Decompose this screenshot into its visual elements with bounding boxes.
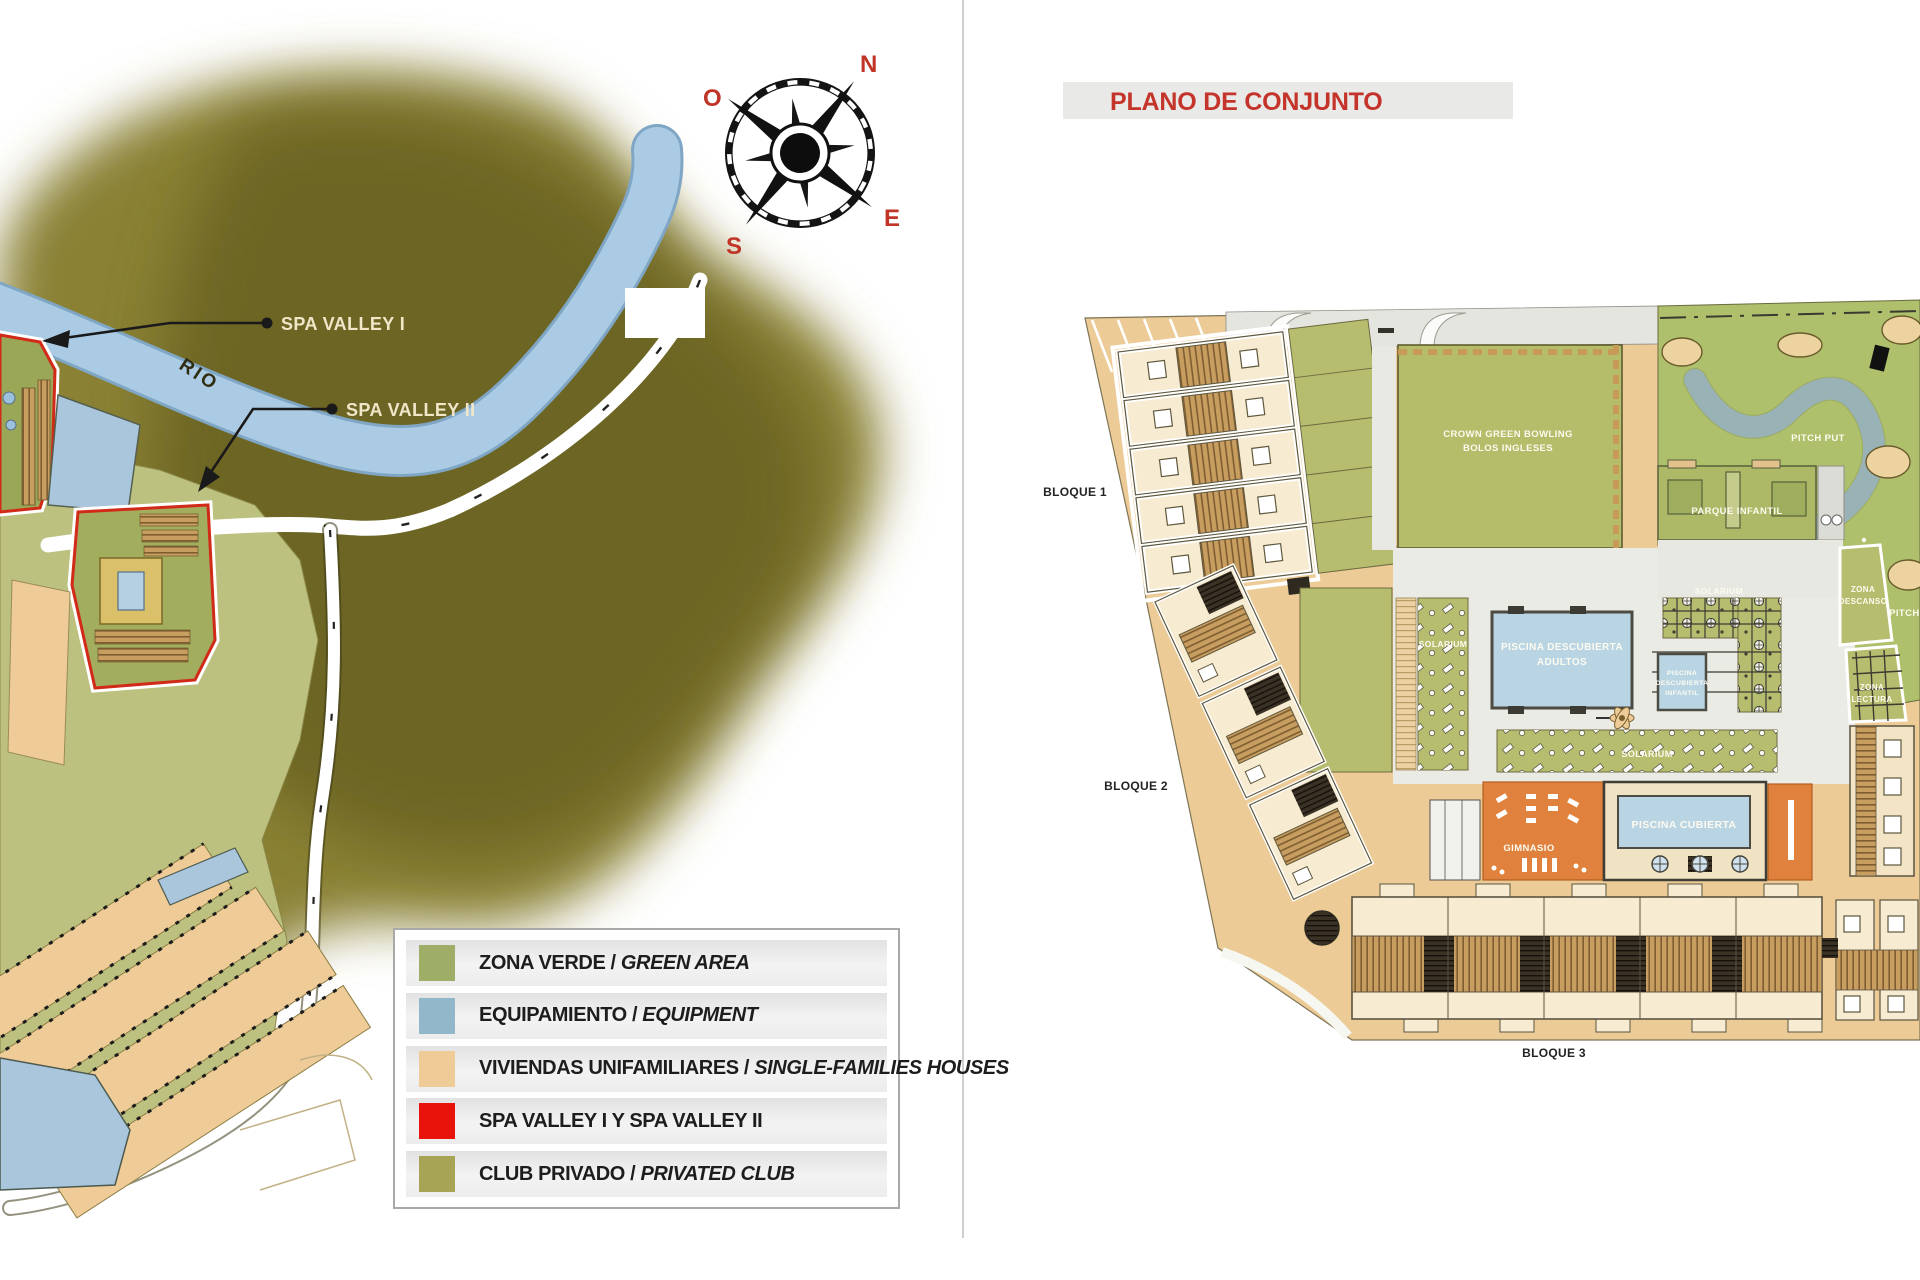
plan-title: PLANO DE CONJUNTO [1110,88,1383,117]
legend-label: CLUB PRIVADO / PRIVATED CLUB [479,1163,795,1186]
east-building [1850,726,1914,876]
label-spa-valley-1: SPA VALLEY I [281,314,405,334]
label-zona-descanso-2: DESCANSO [1839,597,1888,606]
legend-row-zona-verde: ZONA VERDE / GREEN AREA [406,940,887,986]
solarium-west [1396,598,1468,770]
legend-separator: / [605,952,620,974]
map-legend: ZONA VERDE / GREEN AREA EQUIPAMIENTO / E… [393,928,900,1209]
label-solarium-south: SOLARIUM [1621,749,1672,759]
label-solarium-west: SOLARIUM [1419,639,1468,649]
parque-infantil [1658,460,1844,540]
legend-separator: / [739,1057,754,1079]
label-pool-infantil-3: INFANTIL [1665,690,1699,697]
compass-rose: N O E S [674,27,926,279]
site-plan-canvas: SPA VALLEY I SPA VALLEY II RIO [0,0,1920,1280]
label-zona-lectura-2: LECTURA [1851,695,1892,704]
label-bloque-3: BLOQUE 3 [1522,1046,1586,1060]
label-pool-infantil-1: PISCINA [1667,670,1697,677]
label-gimnasio: GIMNASIO [1503,843,1554,854]
legend-label: ZONA VERDE / GREEN AREA [479,952,749,975]
parcel-spa-valley-1 [0,335,55,512]
legend-label-es: EQUIPAMIENTO [479,1004,627,1026]
label-piscina-cubierta: PISCINA CUBIERTA [1632,819,1737,831]
legend-row-club-privado: CLUB PRIVADO / PRIVATED CLUB [406,1151,887,1197]
plan-title-bar: PLANO DE CONJUNTO [1063,82,1513,119]
legend-label-en: GREEN AREA [621,952,750,974]
label-crown-green-bowling: CROWN GREEN BOWLING [1443,429,1573,440]
walkway [1658,540,1843,598]
label-pitch-put-2: PITCH PUT [1889,608,1920,619]
label-spa-valley-2: SPA VALLEY II [346,400,476,420]
legend-swatch-equipment [419,998,455,1034]
label-zona-lectura-1: ZONA [1860,683,1884,692]
legend-separator: / [625,1163,640,1185]
legend-label-es: ZONA VERDE [479,952,605,974]
label-parque-infantil: PARQUE INFANTIL [1691,506,1782,517]
compass-e: E [884,205,900,232]
label-pool-adults-2: ADULTOS [1537,657,1587,668]
label-pitch-put: PITCH PUT [1791,433,1845,444]
legend-label-en: PRIVATED CLUB [640,1163,794,1185]
legend-label-es: CLUB PRIVADO [479,1163,625,1185]
label-pool-infantil-2: DESCUBIERTA [1656,680,1709,687]
legend-swatch-green-area [419,945,455,981]
walkway [1372,346,1396,550]
compass-n: N [860,51,877,78]
legend-label-es: VIVIENDAS UNIFAMILIARES [479,1057,739,1079]
east-service-block [1768,784,1812,880]
compass-o: O [703,85,722,112]
legend-swatch-club [419,1156,455,1192]
legend-label-en: EQUIPMENT [642,1004,757,1026]
legend-row-equipamiento: EQUIPAMIENTO / EQUIPMENT [406,993,887,1039]
legend-label-es: SPA VALLEY I Y SPA VALLEY II [479,1110,762,1132]
legend-label: VIVIENDAS UNIFAMILIARES / SINGLE-FAMILIE… [479,1057,1009,1080]
compass-s: S [726,233,742,260]
label-zona-descanso-1: ZONA [1851,585,1875,594]
legend-label: SPA VALLEY I Y SPA VALLEY II [479,1110,762,1133]
legend-separator: / [627,1004,642,1026]
label-bloque-1: BLOQUE 1 [1043,485,1107,499]
label-bloque-2: BLOQUE 2 [1104,779,1168,793]
masterplan-page: SPA VALLEY I SPA VALLEY II RIO [0,0,1920,1280]
label-solarium-pergola: SOLARIUM [1695,586,1744,596]
parcel-houses-left [8,580,70,765]
label-pool-adults-1: PISCINA DESCUBIERTA [1501,642,1623,653]
piscina-cubierta-hall [1604,782,1766,880]
legend-label-en: SINGLE-FAMILIES HOUSES [754,1057,1009,1079]
plano-de-conjunto: BLOQUE 1 BLOQUE 2 BLOQUE 3 CROWN GREEN B… [1043,300,1920,1060]
bloque-1-buildings [1112,316,1400,612]
parcel-spa-valley-2 [72,505,215,688]
panel-divider [962,0,964,1238]
legend-label: EQUIPAMIENTO / EQUIPMENT [479,1004,758,1027]
legend-row-spa-valley: SPA VALLEY I Y SPA VALLEY II [406,1098,887,1144]
legend-swatch-houses [419,1051,455,1087]
legend-row-viviendas: VIVIENDAS UNIFAMILIARES / SINGLE-FAMILIE… [406,1046,887,1092]
tree [1305,911,1339,945]
legend-swatch-spa-valley [419,1103,455,1139]
label-bolos-ingleses: BOLOS INGLESES [1463,443,1553,454]
